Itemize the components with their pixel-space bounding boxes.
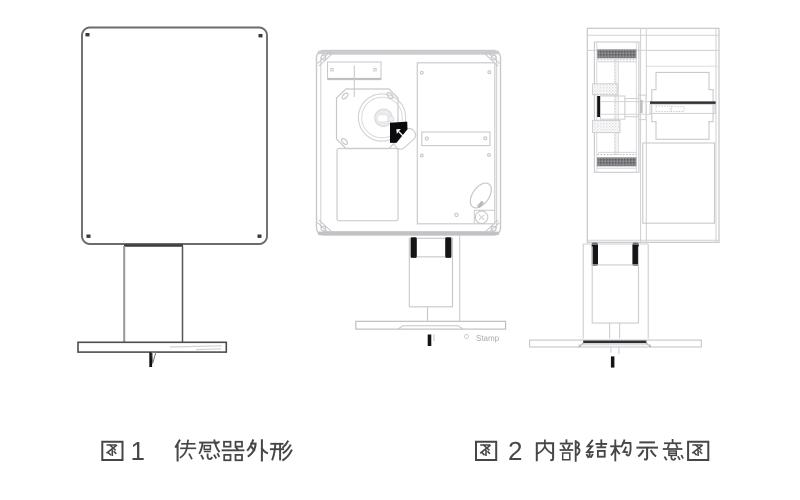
svg-text:2: 2 (508, 436, 522, 466)
svg-text:1: 1 (131, 436, 145, 466)
svg-text:Stamp: Stamp (476, 334, 500, 343)
